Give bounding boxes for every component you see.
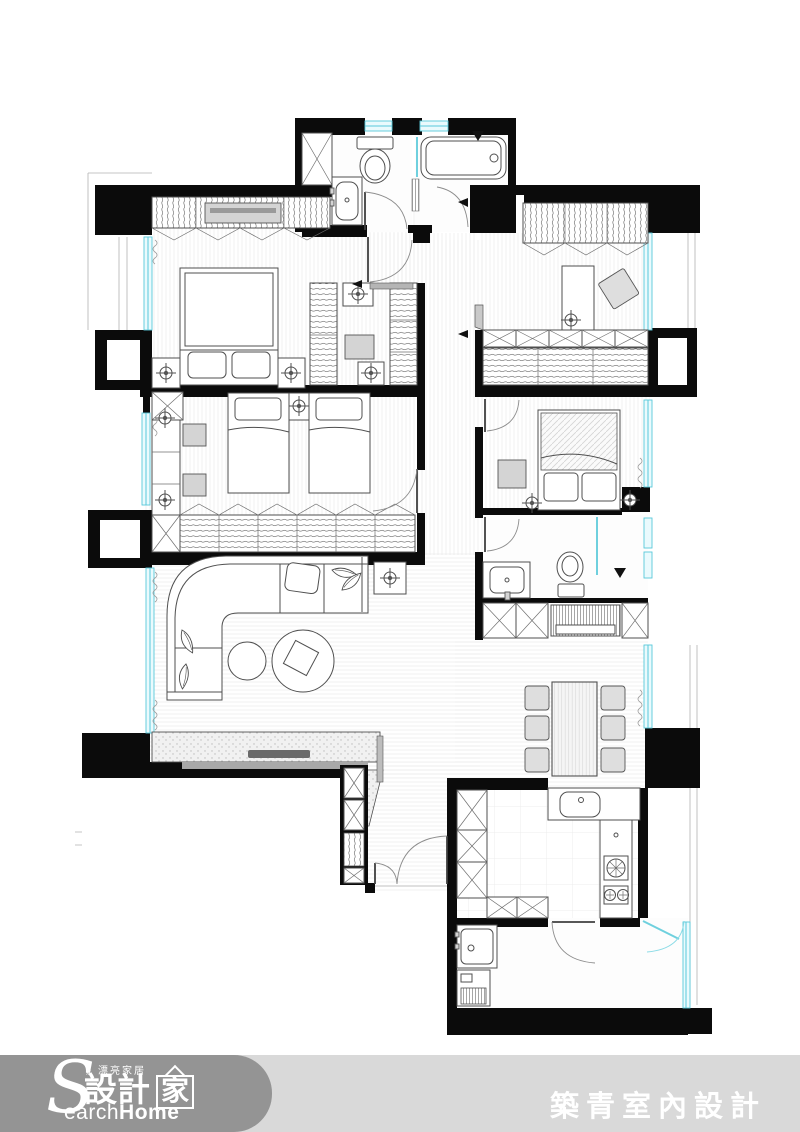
bed-icon: [538, 410, 620, 510]
bathtub-icon: [421, 137, 506, 179]
dining-area: [525, 682, 642, 776]
dining-chair: [601, 748, 625, 772]
bed-icon: [309, 393, 370, 493]
sideboard-row: [483, 603, 648, 638]
window-band-icon: [144, 237, 152, 330]
floor-plan: [0, 0, 800, 1132]
window-band-icon: [683, 922, 690, 1008]
sink-icon: [483, 562, 530, 600]
wardrobe-hanging-icon: [483, 348, 648, 385]
toilet-icon: [357, 137, 393, 183]
searchhome-logo[interactable]: S 》漂亮家居 設計 家 earchHome: [0, 1055, 272, 1132]
bed-icon: [228, 393, 289, 493]
window-band-icon: [644, 645, 652, 728]
logo-latin: earchHome: [64, 1101, 179, 1125]
toilet-icon: [557, 552, 584, 597]
tall-cabinets: [457, 790, 487, 898]
pipe-shaft: [302, 133, 332, 185]
sink-icon: [330, 177, 362, 225]
window-band-icon: [644, 233, 652, 330]
company-name: 築青室內設計: [550, 1083, 766, 1125]
cabinet-x-row: [483, 330, 648, 347]
dining-chair: [525, 686, 549, 710]
dining-chair: [601, 686, 625, 710]
entry-closet: [340, 765, 368, 885]
end-panel: [475, 305, 483, 330]
dining-table-icon: [552, 682, 597, 776]
stove-counter: [600, 820, 632, 918]
side-table: [498, 460, 526, 488]
window-band-icon: [644, 518, 652, 578]
lower-cabinets: [487, 897, 548, 918]
washer-icon: [457, 970, 490, 1006]
tv: [248, 750, 310, 758]
cushion: [284, 562, 321, 594]
screenshot-root: S 》漂亮家居 設計 家 earchHome 築青室內設計: [0, 0, 800, 1132]
bed-icon: [180, 268, 278, 385]
window-band-icon: [420, 121, 448, 131]
ledge-hatch: [412, 179, 419, 211]
window-band-icon: [142, 413, 150, 505]
footer-bar: S 》漂亮家居 設計 家 earchHome 築青室內設計: [0, 1055, 800, 1132]
window-band-icon: [365, 121, 392, 131]
sink-icon: [548, 788, 640, 820]
laundry-sink-icon: [455, 925, 497, 968]
dining-chair: [601, 716, 625, 740]
dining-chair: [525, 748, 549, 772]
window-band-icon: [644, 400, 652, 487]
coffee-table: [272, 630, 334, 692]
coffee-table: [228, 642, 266, 680]
dining-chair: [525, 716, 549, 740]
